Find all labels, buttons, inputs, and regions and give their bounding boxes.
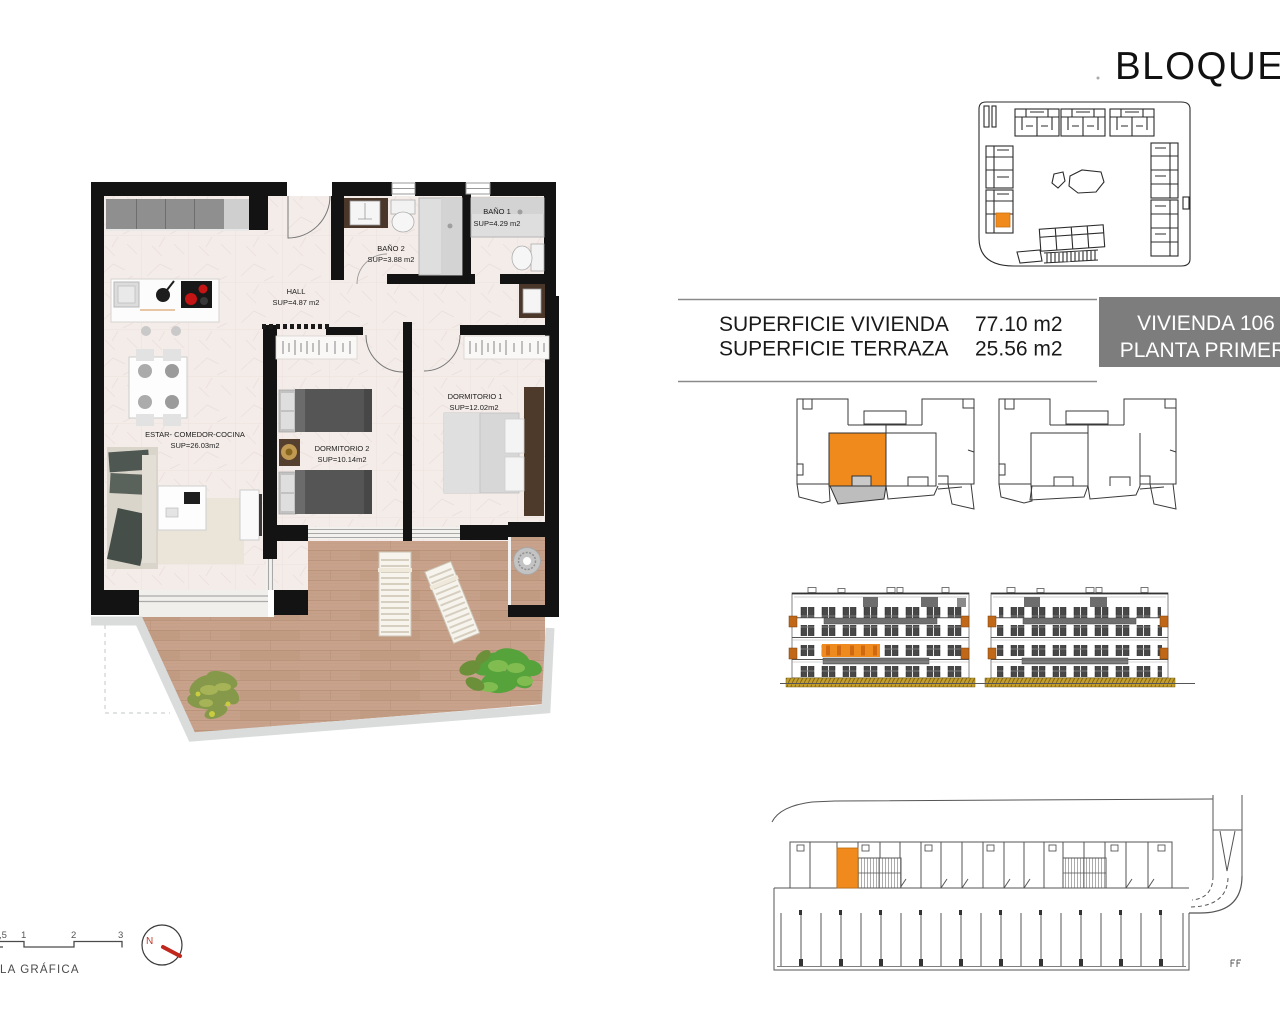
- svg-text:2: 2: [71, 930, 76, 941]
- svg-text:SUP=26.03m2: SUP=26.03m2: [171, 441, 220, 450]
- svg-text:PLANTA PRIMERA: PLANTA PRIMERA: [1120, 339, 1280, 362]
- svg-text:N: N: [146, 936, 153, 947]
- svg-text:SUP=4.87 m2: SUP=4.87 m2: [273, 298, 320, 307]
- svg-text:1: 1: [21, 930, 26, 941]
- svg-text:HALL: HALL: [287, 287, 306, 296]
- svg-text:77.10 m2: 77.10 m2: [975, 313, 1063, 336]
- svg-text:DORMITORIO 2: DORMITORIO 2: [315, 444, 370, 453]
- svg-text:DORMITORIO 1: DORMITORIO 1: [448, 392, 503, 401]
- svg-text:BAÑO 2: BAÑO 2: [377, 244, 405, 253]
- svg-text:SUP=4.29 m2: SUP=4.29 m2: [474, 219, 521, 228]
- svg-text:VIVIENDA 106: VIVIENDA 106: [1137, 312, 1275, 335]
- svg-text:SUPERFICIE TERRAZA: SUPERFICIE TERRAZA: [719, 338, 948, 361]
- svg-text:ESTAR- COMEDOR-COCINA: ESTAR- COMEDOR-COCINA: [145, 430, 245, 439]
- svg-text:SUP=3.88 m2: SUP=3.88 m2: [368, 255, 415, 264]
- svg-text:3: 3: [118, 930, 123, 941]
- svg-text:LA GRÁFICA: LA GRÁFICA: [0, 963, 80, 976]
- svg-text:SUP=10.14m2: SUP=10.14m2: [318, 455, 367, 464]
- svg-text:BLOQUE 1: BLOQUE 1: [1115, 45, 1280, 88]
- svg-text:BAÑO 1: BAÑO 1: [483, 207, 511, 216]
- svg-text:25.56 m2: 25.56 m2: [975, 338, 1063, 361]
- svg-text:SUPERFICIE VIVIENDA: SUPERFICIE VIVIENDA: [719, 313, 949, 336]
- svg-text:SUP=12.02m2: SUP=12.02m2: [450, 403, 499, 412]
- svg-text:,5: ,5: [0, 930, 7, 941]
